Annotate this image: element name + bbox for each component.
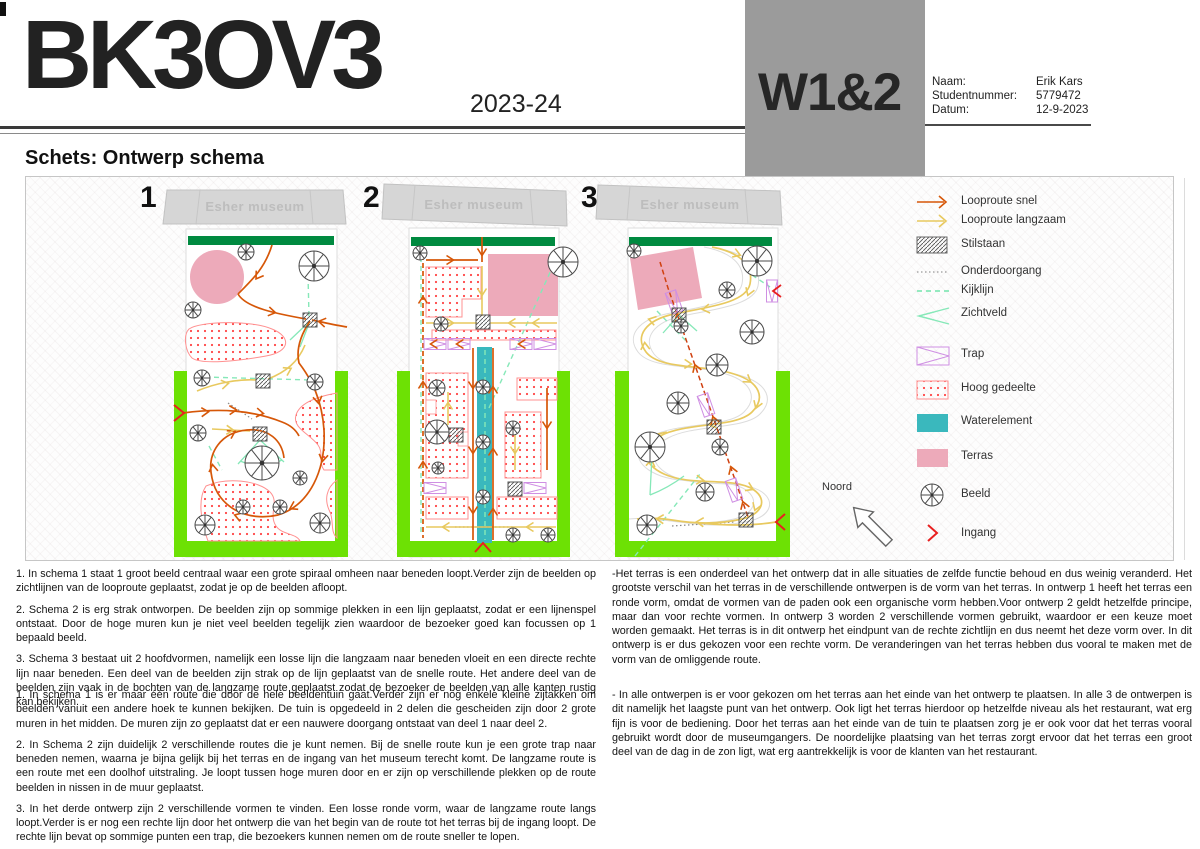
museum-building: Esher museum	[596, 185, 782, 225]
hedge-strip	[188, 236, 334, 245]
hedge-strip	[629, 237, 772, 246]
notes-right-top: -Het terras is een onderdeel van het ont…	[612, 567, 1192, 674]
dotted-line-icon	[915, 262, 955, 282]
legend: Looproute snel Looproute langzaam Stilst…	[915, 180, 1170, 556]
terras-shape	[488, 254, 558, 316]
note-terras-vorm: -Het terras is een onderdeel van het ont…	[612, 567, 1192, 667]
studentnummer-label: Studentnummer:	[932, 90, 1036, 102]
terras-shape	[190, 250, 244, 304]
datum-label: Datum:	[932, 104, 1036, 116]
north-arrow-icon	[828, 490, 912, 560]
week-badge-label: W1&2	[758, 62, 901, 123]
hedge-strip	[411, 237, 555, 246]
museum-building: Esher museum	[382, 184, 567, 226]
corner-mark	[0, 2, 6, 16]
museum-building: Esher museum	[163, 190, 346, 224]
naam-value: Erik Kars	[1036, 76, 1083, 88]
header-rule-thick	[0, 126, 745, 129]
page-title: Schets: Ontwerp schema	[25, 147, 264, 170]
course-code-title: BK3OV3	[22, 6, 380, 103]
red-chevron-icon	[915, 521, 955, 545]
course-year: 2023-24	[470, 90, 562, 119]
studentnummer-value: 5779472	[1036, 90, 1081, 102]
dashed-mint-line-icon	[915, 281, 955, 301]
schema-2-drawing: Esher museum	[355, 180, 585, 560]
red-dotted-box-icon	[915, 379, 955, 401]
naam-label: Naam:	[932, 76, 1036, 88]
museum-label: Esher museum	[640, 197, 739, 212]
note-schema1-routes: 1. In schema 1 is er maar één route die …	[16, 688, 596, 731]
museum-label: Esher museum	[205, 199, 304, 214]
statue-wheel-icon	[915, 482, 955, 508]
info-row-datum: Datum:12-9-2023	[932, 104, 1088, 118]
student-info-block: Naam:Erik Kars Studentnummer:5779472 Dat…	[932, 76, 1088, 118]
poster-page: BK3OV3 2023-24 W1&2 Naam:Erik Kars Stude…	[0, 0, 1200, 849]
info-underline	[925, 124, 1091, 126]
panel-edge-shadow	[1184, 178, 1185, 560]
museum-label: Esher museum	[424, 197, 523, 212]
view-cone-icon	[915, 304, 955, 328]
teal-box-icon	[915, 412, 955, 434]
note-terras-plaatsing: - In alle ontwerpen is er voor gekozen o…	[612, 688, 1192, 759]
hatched-box-icon	[915, 235, 955, 255]
schema-1-drawing: Esher museum	[130, 180, 360, 560]
info-row-studentnummer: Studentnummer:5779472	[932, 90, 1088, 104]
fast-route-arrow-icon	[915, 192, 955, 212]
info-row-naam: Naam:Erik Kars	[932, 76, 1088, 90]
note-schema3-routes: 3. In het derde ontwerp zijn 2 verschill…	[16, 802, 596, 845]
datum-value: 12-9-2023	[1036, 104, 1088, 116]
note-schema1-beelden: 1. In schema 1 staat 1 groot beeld centr…	[16, 567, 596, 596]
pink-box-icon	[915, 447, 955, 469]
header-rule-thin	[0, 133, 745, 134]
note-schema2-routes: 2. In Schema 2 zijn duidelijk 2 verschil…	[16, 738, 596, 795]
notes-right-bottom: - In alle ontwerpen is er voor gekozen o…	[612, 688, 1192, 766]
slow-route-arrow-icon	[915, 211, 955, 231]
notes-left-bottom: 1. In schema 1 is er maar één route die …	[16, 688, 596, 849]
note-schema2-beelden: 2. Schema 2 is erg strak ontworpen. De b…	[16, 603, 596, 646]
stairs-box-icon	[915, 345, 955, 367]
week-badge: W1&2	[745, 0, 925, 181]
schema-3-drawing: Esher museum	[575, 180, 805, 560]
